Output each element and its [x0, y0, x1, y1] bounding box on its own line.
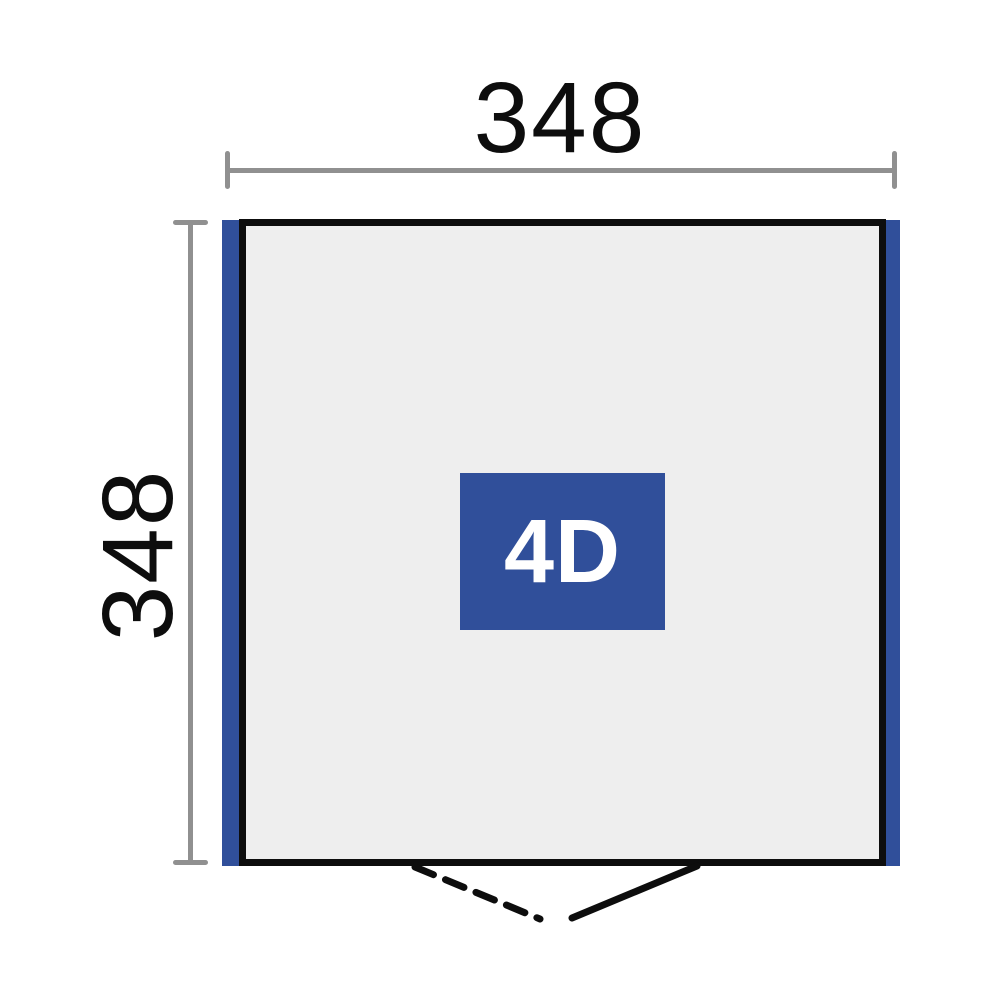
dimension-tick-left — [225, 151, 230, 189]
model-badge-label: 4D — [504, 507, 621, 597]
dimension-tick-right — [892, 151, 897, 189]
depth-dimension-label: 348 — [88, 469, 188, 642]
width-dimension-line — [227, 168, 895, 173]
dimension-tick-top — [173, 220, 208, 225]
door-right-leaf-solid-line — [572, 866, 697, 918]
width-dimension-label: 348 — [474, 68, 647, 168]
model-badge: 4D — [460, 473, 665, 630]
dimension-tick-bottom — [173, 860, 208, 865]
door-left-leaf-dashed-line — [415, 867, 540, 919]
right-wall-panel-strip — [886, 220, 900, 866]
shed-floor-plan: 348 348 4D — [0, 0, 1000, 1000]
depth-dimension-line — [188, 222, 193, 863]
left-wall-panel-strip — [222, 220, 239, 866]
